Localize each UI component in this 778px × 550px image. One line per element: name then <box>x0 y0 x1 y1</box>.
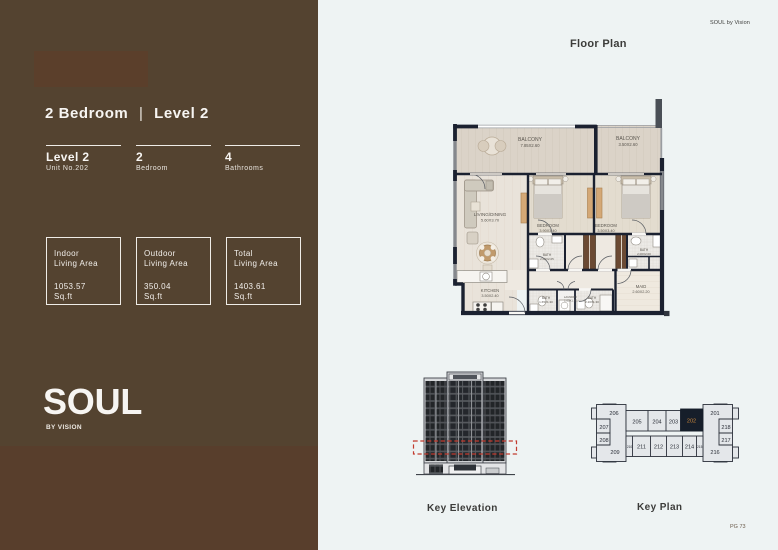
svg-text:218: 218 <box>721 425 730 431</box>
svg-text:3.90X3.40: 3.90X3.40 <box>539 229 556 233</box>
svg-text:207: 207 <box>599 425 608 431</box>
svg-text:212: 212 <box>654 445 663 451</box>
svg-text:2.20X1.30: 2.20X1.30 <box>585 300 599 304</box>
svg-text:215: 215 <box>697 445 703 449</box>
svg-text:209: 209 <box>610 450 619 456</box>
svg-text:202: 202 <box>687 419 696 425</box>
svg-text:MAID: MAID <box>636 284 646 289</box>
svg-text:7.85X2.60: 7.85X2.60 <box>520 143 540 148</box>
svg-text:2.00X2.05: 2.00X2.05 <box>540 257 554 261</box>
svg-text:1.05X1.30: 1.05X1.30 <box>564 299 577 303</box>
svg-text:211: 211 <box>637 445 646 451</box>
svg-text:2.60X2.20: 2.60X2.20 <box>632 290 649 294</box>
svg-text:3.50X2.60: 3.50X2.60 <box>618 142 638 147</box>
svg-text:BEDROOM: BEDROOM <box>537 223 559 228</box>
svg-text:217: 217 <box>721 438 730 444</box>
svg-text:214: 214 <box>685 445 694 451</box>
svg-text:204: 204 <box>652 420 661 426</box>
svg-text:2.00X2.00: 2.00X2.00 <box>637 252 651 256</box>
svg-text:KITCHEN: KITCHEN <box>481 288 499 293</box>
svg-text:201: 201 <box>710 411 719 417</box>
svg-text:210: 210 <box>627 445 633 449</box>
svg-text:3.50X2.40: 3.50X2.40 <box>481 294 498 298</box>
svg-text:206: 206 <box>609 411 618 417</box>
svg-text:216: 216 <box>710 450 719 456</box>
svg-text:213: 213 <box>670 445 679 451</box>
svg-text:1.65X1.30: 1.65X1.30 <box>539 300 553 304</box>
svg-text:5.60X3.70: 5.60X3.70 <box>481 218 500 223</box>
svg-text:208: 208 <box>599 438 608 444</box>
svg-text:BEDROOM: BEDROOM <box>595 223 617 228</box>
svg-text:203: 203 <box>669 420 678 426</box>
svg-text:LIVING/DINING: LIVING/DINING <box>474 212 507 217</box>
svg-text:205: 205 <box>632 420 641 426</box>
svg-text:3.50X3.40: 3.50X3.40 <box>597 229 614 233</box>
